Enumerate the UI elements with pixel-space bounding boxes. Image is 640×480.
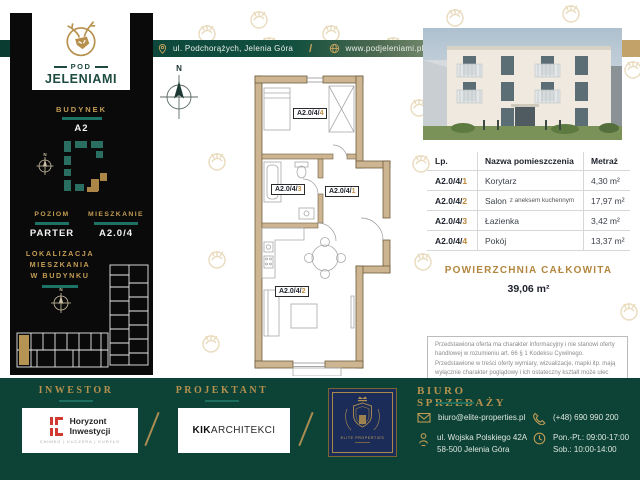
inwestor-underline (59, 400, 93, 402)
poziom-underline (35, 222, 69, 225)
inwestor-heading: INWESTOR (20, 385, 132, 396)
inwestor-logo-card: HoryzontInwestycji CHIMKO | KUCZERA | KU… (22, 408, 138, 453)
svg-text:N: N (43, 152, 46, 157)
header-address: ul. Podchorążych, Jelenia Góra (173, 44, 293, 53)
deer-logo-icon (61, 20, 101, 60)
budynek-label: BUDYNEK (10, 105, 153, 114)
logo-pod-row: POD (54, 62, 109, 71)
location-pin-icon (158, 43, 167, 55)
footer-slash-divider (298, 412, 313, 446)
elite-properties-logo-card: ELITE PROPERTIES (328, 388, 397, 457)
globe-icon (329, 43, 340, 54)
address-item: ul. Wojska Polskiego 42A 58-500 Jelenia … (417, 432, 527, 457)
col-nazwa: Nazwa pomieszczenia (477, 152, 583, 170)
phone-item: (+48) 690 990 200 (533, 412, 619, 425)
biuro-heading: BIURO SPRZEDAŻY (417, 385, 557, 409)
hours-line1: Pon.-Pt.: 09:00-17:00 (553, 432, 629, 444)
compass-small-icon: N (36, 151, 54, 177)
kik-rest: ARCHITEKCI (211, 425, 276, 436)
mieszkanie-value: A2.0/4 (84, 228, 148, 239)
biuro-underline (436, 402, 474, 404)
rooms-table: Lp. Nazwa pomieszczenia Metraż A2.0/4/1 … (427, 152, 630, 251)
col-metraz: Metraż (583, 152, 630, 170)
compass-mini-icon: N (51, 287, 71, 313)
table-header-row: Lp. Nazwa pomieszczenia Metraż (427, 152, 630, 171)
total-area: POWIERZCHNIA CAŁKOWITA 39,06 m² (427, 265, 630, 295)
horyzont-sub-text: CHIMKO | KUCZERA | KURYŁO (40, 439, 120, 444)
table-row: A2.0/4/2 Salonz aneksem kuchennym 17,97 … (427, 191, 630, 211)
table-row: A2.0/4/3 Łazienka 3,42 m² (427, 211, 630, 231)
footer-slash-divider (144, 412, 159, 446)
address-line2: 58-500 Jelenia Góra (437, 444, 527, 456)
budynek-underline (62, 117, 102, 120)
apartment-card-page: ul. Podchorążych, Jelenia Góra / www.pod… (0, 0, 640, 480)
table-row: A2.0/4/4 Pokój 13,37 m² (427, 231, 630, 251)
kik-bold: KIK (193, 425, 211, 436)
projektant-underline (205, 400, 239, 402)
poziom-value: PARTER (18, 228, 86, 239)
header-website[interactable]: www.podjeleniami.pl (346, 44, 424, 53)
room-label-1: A2.0/4/1 (325, 186, 359, 197)
room-label-2: A2.0/4/2 (275, 286, 309, 297)
building-floorplan-mini: N (15, 263, 150, 371)
hours-item: Pon.-Pt.: 09:00-17:00 Sob.: 10:00-14:00 (533, 432, 629, 457)
mieszkanie-underline (94, 222, 138, 225)
phone-link[interactable]: (+48) 690 990 200 (553, 412, 619, 424)
hours-line2: Sob.: 10:00-14:00 (553, 444, 629, 456)
projektant-logo-card: KIKARCHITEKCI (178, 408, 290, 453)
svg-text:N: N (59, 287, 62, 292)
col-lp: Lp. (427, 152, 477, 170)
room-label-4: A2.0/4/4 (293, 108, 327, 119)
apartment-floorplan: A2.0/4/4 A2.0/4/3 A2.0/4/1 A2.0/4/2 (233, 58, 403, 376)
person-pin-icon (417, 432, 430, 447)
address-line1: ul. Wojska Polskiego 42A (437, 432, 527, 444)
footer: INWESTOR HoryzontInwestycji CHIMKO | KUC… (0, 378, 640, 480)
total-area-value: 39,06 m² (427, 283, 630, 295)
phone-icon (533, 412, 546, 425)
logo-card: POD JELENIAMI (32, 13, 130, 90)
logo-name: JELENIAMI (45, 72, 117, 86)
table-row: A2.0/4/1 Korytarz 4,30 m² (427, 171, 630, 191)
horyzont-name-line2: Inwestycji (70, 427, 111, 436)
compass-main: N (160, 64, 198, 125)
elite-crest-icon: ELITE PROPERTIES (329, 389, 396, 456)
compass-rose-icon (160, 74, 198, 120)
poziom-label: POZIOM (18, 211, 86, 218)
highlighted-unit (19, 335, 29, 365)
email-item: biuro@elite-properties.pl (417, 412, 525, 424)
email-link[interactable]: biuro@elite-properties.pl (438, 412, 525, 424)
mieszkanie-label: MIESZKANIE (84, 211, 148, 218)
building-blocks-icon (52, 137, 110, 197)
room-label-3: A2.0/4/3 (271, 184, 305, 195)
clock-icon (533, 432, 546, 445)
building-render-photo (423, 28, 622, 140)
budynek-value: A2 (10, 123, 153, 134)
elite-logo-text: ELITE PROPERTIES (341, 436, 385, 440)
horyzont-logo-icon (50, 417, 65, 436)
envelope-icon (417, 412, 431, 423)
logo-pod: POD (71, 62, 92, 71)
total-area-label: POWIERZCHNIA CAŁKOWITA (427, 265, 630, 276)
header-separator: / (309, 43, 312, 55)
compass-north-label: N (160, 64, 198, 73)
projektant-heading: PROJEKTANT (166, 385, 278, 396)
